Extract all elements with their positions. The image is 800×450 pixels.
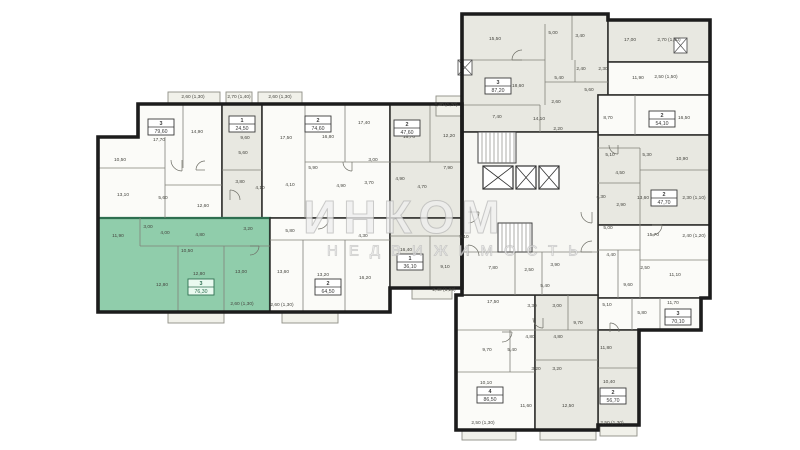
room-area-label: 5,90 xyxy=(308,165,318,171)
room-area-label: 5,30 xyxy=(642,152,652,158)
room-area-label: 2,70 (1,40) xyxy=(657,37,681,43)
room-area-label: 3,20 xyxy=(531,366,541,372)
room-area-label: 17,40 xyxy=(358,120,370,126)
room-area-label: 11,90 xyxy=(632,75,644,81)
room-area-label: 16,20 xyxy=(359,275,371,281)
room-area-label: 2,50 (1,30) xyxy=(600,420,624,426)
svg-text:36,10: 36,10 xyxy=(404,264,417,270)
room-area-label: 4,80 xyxy=(553,334,563,340)
svg-text:2: 2 xyxy=(663,192,666,198)
room-area-label: 14,90 xyxy=(191,129,203,135)
elevator-shaft xyxy=(539,166,559,189)
room-area-label: 2,40 (1,20) xyxy=(682,233,706,239)
unit-label-u7[interactable]: 136,10 xyxy=(397,254,423,270)
vent-shaft xyxy=(458,60,472,75)
svg-text:1: 1 xyxy=(241,118,244,124)
room-area-label: 4,30 xyxy=(596,194,606,200)
room-area-label: 4,10 xyxy=(285,182,295,188)
svg-text:87,20: 87,20 xyxy=(492,88,505,94)
unit-u17[interactable] xyxy=(535,295,598,430)
room-area-label: 9,10 xyxy=(440,264,450,270)
unit-label-u14[interactable]: 370,10 xyxy=(665,309,691,325)
elevator-shaft xyxy=(483,166,513,189)
room-area-label: 5,10 xyxy=(602,302,612,308)
svg-text:3: 3 xyxy=(677,311,680,317)
room-area-label: 12,20 xyxy=(443,133,455,139)
room-area-label: 4,10 xyxy=(255,185,265,191)
room-area-label: 13,00 xyxy=(235,269,247,275)
room-area-label: 15,50 xyxy=(489,36,501,42)
room-area-label: 4,70 xyxy=(417,184,427,190)
room-area-label: 16,40 xyxy=(400,247,412,253)
room-area-label: 18,60 xyxy=(512,83,524,89)
room-area-label: 10,90 xyxy=(676,156,688,162)
room-area-label: 5,40 xyxy=(554,75,564,81)
room-area-label: 7,80 xyxy=(488,265,498,271)
room-area-label: 2,90 xyxy=(616,202,626,208)
room-area-label: 11,10 xyxy=(669,272,681,278)
room-area-label: 3,00 xyxy=(552,303,562,309)
svg-text:76,30: 76,30 xyxy=(195,289,208,295)
room-area-label: 2,60 (1,30) xyxy=(270,302,294,308)
svg-text:2: 2 xyxy=(612,390,615,396)
room-area-label: 14,10 xyxy=(533,116,545,122)
room-area-label: 4,80 xyxy=(195,232,205,238)
room-area-label: 17,70 xyxy=(153,137,165,143)
room-area-label: 4,80 xyxy=(525,334,535,340)
room-area-label: 5,00 xyxy=(548,30,558,36)
room-area-label: 3,90 xyxy=(550,262,560,268)
room-area-label: 2,60 (1,30) xyxy=(268,94,292,100)
svg-text:2: 2 xyxy=(661,113,664,119)
room-area-label: 12,60 xyxy=(197,203,209,209)
room-area-label: 10,10 xyxy=(480,380,492,386)
room-area-label: 9,70 xyxy=(573,320,583,326)
svg-text:47,60: 47,60 xyxy=(401,130,414,136)
svg-text:24,50: 24,50 xyxy=(236,126,249,132)
room-area-label: 4,50 xyxy=(615,170,625,176)
unit-label-u1[interactable]: 379,60 xyxy=(148,119,174,135)
room-area-label: 5,60 xyxy=(238,150,248,156)
svg-text:2: 2 xyxy=(406,122,409,128)
staircase xyxy=(478,132,516,163)
room-area-label: 2,60 xyxy=(551,99,561,105)
unit-u16[interactable] xyxy=(456,295,535,430)
room-area-label: 2,40 (1,20) xyxy=(432,287,456,293)
room-area-label: 11,60 xyxy=(520,403,532,409)
room-area-label: 2,50 (1,30) xyxy=(471,420,495,426)
unit-label-u12[interactable]: 247,70 xyxy=(651,190,677,206)
room-area-label: 5,80 xyxy=(285,228,295,234)
room-area-label: 4,30 xyxy=(358,233,368,239)
room-area-label: 2,30 xyxy=(598,66,608,72)
svg-text:1: 1 xyxy=(409,256,412,262)
unit-u5[interactable] xyxy=(98,218,270,312)
room-area-label: 13,20 xyxy=(317,272,329,278)
unit-u8[interactable] xyxy=(462,14,608,132)
room-area-label: 3,70 xyxy=(364,180,374,186)
room-area-label: 10,40 xyxy=(603,379,615,385)
room-area-label: 4,90 xyxy=(395,176,405,182)
room-area-label: 11,80 xyxy=(600,345,612,351)
room-area-label: 2,20 xyxy=(553,126,563,132)
floor-plan-canvas: 17,7014,9010,5013,105,6012,609,605,603,8… xyxy=(0,0,800,450)
room-area-label: 9,60 xyxy=(623,282,633,288)
room-area-label: 2,60 (1,30) xyxy=(181,94,205,100)
svg-text:56,70: 56,70 xyxy=(607,398,620,404)
svg-text:74,60: 74,60 xyxy=(312,126,325,132)
svg-text:3: 3 xyxy=(200,281,203,287)
room-area-label: 10,50 xyxy=(181,248,193,254)
room-area-label: 10,50 xyxy=(114,157,126,163)
room-area-label: 2,60 (1,30) xyxy=(230,301,254,307)
unit-label-u4[interactable]: 247,60 xyxy=(394,120,420,136)
room-area-label: 7,40 xyxy=(492,114,502,120)
svg-text:4: 4 xyxy=(489,389,492,395)
staircase xyxy=(498,223,532,252)
room-area-label: 2,70 (1,40) xyxy=(227,94,251,100)
room-area-label: 8,70 xyxy=(603,115,613,121)
room-area-label: 2,50 (1,50) xyxy=(654,74,678,80)
room-area-label: 3,20 xyxy=(243,226,253,232)
floor-plan: 17,7014,9010,5013,105,6012,609,605,603,8… xyxy=(0,0,800,450)
room-area-label: 9,70 xyxy=(482,347,492,353)
unit-u15[interactable] xyxy=(598,330,639,425)
unit-label-u2[interactable]: 124,50 xyxy=(229,116,255,132)
room-area-label: 11,70 xyxy=(667,300,679,306)
room-area-label: 13,10 xyxy=(117,192,129,198)
room-area-label: 2,40 (1,20) xyxy=(434,102,458,108)
room-area-label: 16,80 xyxy=(322,134,334,140)
room-area-label: 9,60 xyxy=(240,135,250,141)
room-area-label: 16,50 xyxy=(678,115,690,121)
svg-text:47,70: 47,70 xyxy=(658,200,671,206)
svg-text:2: 2 xyxy=(327,281,330,287)
room-area-label: 7,90 xyxy=(443,165,453,171)
svg-text:79,60: 79,60 xyxy=(155,129,168,135)
svg-text:64,50: 64,50 xyxy=(322,289,335,295)
svg-text:3: 3 xyxy=(497,80,500,86)
room-area-label: 4,90 xyxy=(336,183,346,189)
svg-text:70,10: 70,10 xyxy=(672,319,685,325)
svg-text:86,50: 86,50 xyxy=(484,397,497,403)
unit-label-u5[interactable]: 376,30 xyxy=(188,279,214,295)
room-area-label: 13,60 xyxy=(277,269,289,275)
room-area-label: 4,00 xyxy=(160,230,170,236)
room-area-label: 5,60 xyxy=(584,87,594,93)
unit-label-u6[interactable]: 264,50 xyxy=(315,279,341,295)
unit-label-u3[interactable]: 274,60 xyxy=(305,116,331,132)
svg-text:3: 3 xyxy=(160,121,163,127)
svg-text:54,10: 54,10 xyxy=(656,121,669,127)
room-area-label: 5,10 xyxy=(459,234,469,240)
unit-label-u16[interactable]: 486,50 xyxy=(477,387,503,403)
unit-u7[interactable] xyxy=(390,218,462,288)
room-area-label: 5,10 xyxy=(605,152,615,158)
room-area-label: 3,00 xyxy=(368,157,378,163)
room-area-label: 17,00 xyxy=(624,37,636,43)
room-area-label: 13,60 xyxy=(637,195,649,201)
room-area-label: 2,30 (1,10) xyxy=(682,195,706,201)
room-area-label: 5,40 xyxy=(540,283,550,289)
room-area-label: 4,40 xyxy=(606,252,616,258)
room-area-label: 3,80 xyxy=(235,179,245,185)
room-area-label: 2,50 xyxy=(640,265,650,271)
room-area-label: 12,80 xyxy=(193,271,205,277)
room-area-label: 5,40 xyxy=(507,347,517,353)
elevator-shaft xyxy=(516,166,536,189)
room-area-label: 12,50 xyxy=(562,403,574,409)
room-area-label: 3,40 xyxy=(575,33,585,39)
room-area-label: 12,80 xyxy=(156,282,168,288)
room-area-label: 17,50 xyxy=(487,299,499,305)
room-area-label: 3,20 xyxy=(552,366,562,372)
svg-text:2: 2 xyxy=(317,118,320,124)
room-area-label: 5,60 xyxy=(158,195,168,201)
room-area-label: 5,80 xyxy=(637,310,647,316)
room-area-label: 3,00 xyxy=(143,224,153,230)
unit-label-u15[interactable]: 256,70 xyxy=(600,388,626,404)
unit-u12[interactable] xyxy=(598,135,710,225)
room-area-label: 2,50 xyxy=(524,267,534,273)
room-area-label: 11,90 xyxy=(112,233,124,239)
room-area-label: 5,00 xyxy=(603,225,613,231)
unit-label-u11[interactable]: 254,10 xyxy=(649,111,675,127)
room-area-label: 3,30 xyxy=(527,303,537,309)
room-area-label: 15,70 xyxy=(647,232,659,238)
room-area-label: 2,40 xyxy=(576,66,586,72)
unit-label-u8[interactable]: 387,20 xyxy=(485,78,511,94)
room-area-label: 17,50 xyxy=(280,135,292,141)
